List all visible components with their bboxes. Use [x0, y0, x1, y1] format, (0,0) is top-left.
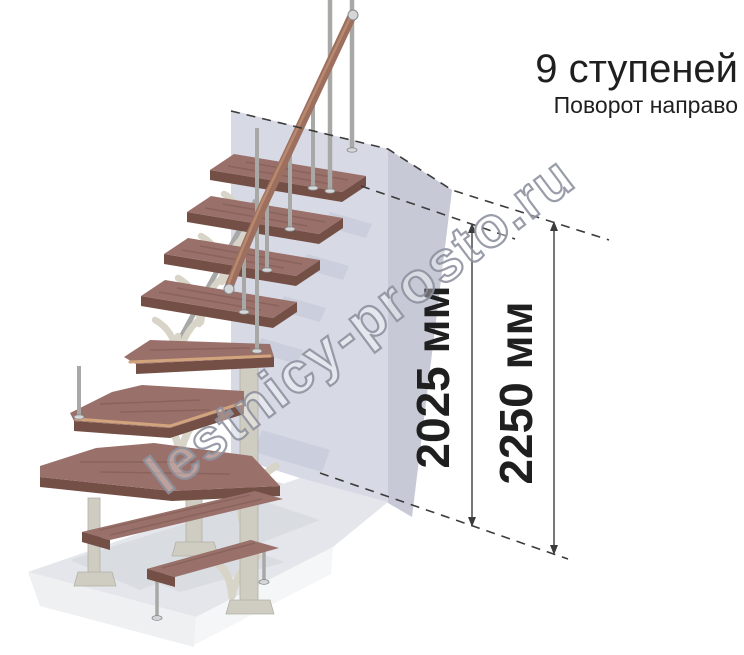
- dimension-arrow-2250: 2250 мм: [490, 221, 558, 555]
- diagram-subtitle: Поворот направо: [554, 92, 738, 118]
- baluster-foot: [347, 148, 357, 152]
- baluster-foot: [252, 349, 262, 353]
- baluster-foot: [74, 415, 84, 419]
- baluster-foot: [239, 310, 249, 314]
- dimension-label-2250: 2250 мм: [490, 301, 542, 484]
- support-post-base: [74, 572, 116, 586]
- leg-foot: [152, 616, 162, 621]
- baluster-foot: [308, 186, 318, 190]
- handrail-end-cap: [224, 284, 234, 294]
- baluster-foot: [325, 189, 335, 193]
- diagram-title: 9 ступеней: [535, 47, 738, 91]
- diagram-canvas: 2025 мм 2250 мм 9 ступеней Поворот напра…: [0, 0, 744, 655]
- newel-column-base: [226, 600, 274, 614]
- baluster-foot: [262, 268, 272, 272]
- handrail-end-cap: [348, 10, 358, 20]
- leg-foot: [259, 580, 269, 585]
- titles: 9 ступеней Поворот направо: [535, 47, 738, 118]
- baluster-foot: [285, 227, 295, 231]
- staircase-diagram: 2025 мм 2250 мм 9 ступеней Поворот напра…: [0, 0, 744, 655]
